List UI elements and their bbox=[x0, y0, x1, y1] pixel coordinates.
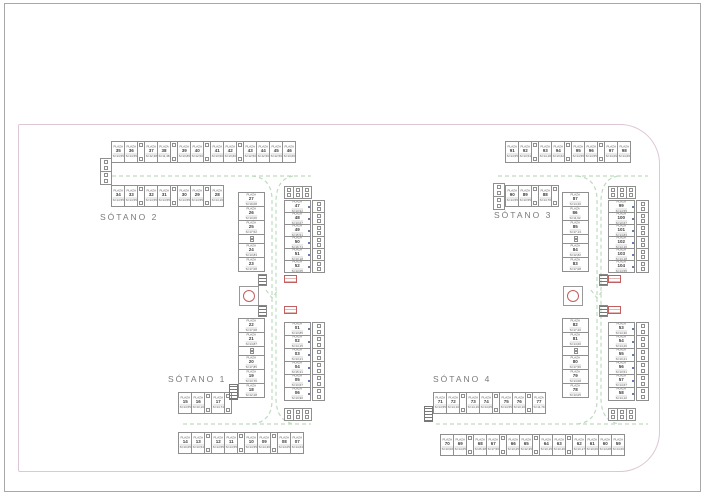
utility-box-icon bbox=[620, 415, 624, 419]
utility-cell bbox=[100, 171, 112, 185]
utility-box-icon bbox=[599, 157, 603, 161]
plaza-number: 87 bbox=[573, 196, 578, 201]
utility-box-icon bbox=[317, 207, 321, 211]
utility-box-icon bbox=[620, 188, 624, 192]
utility-box-icon bbox=[205, 201, 209, 205]
parking-space: PLAZA09S=14,36 bbox=[257, 432, 271, 454]
utility-box-icon bbox=[296, 415, 300, 419]
plaza-area: S=13,65 bbox=[292, 269, 303, 273]
plaza-number: 84 bbox=[573, 247, 578, 252]
utility-box-icon bbox=[317, 214, 321, 218]
parking-space-text: PLAZA27S=19,08 bbox=[246, 193, 257, 206]
door-mark bbox=[308, 206, 311, 208]
plaza-area: S=12,38 bbox=[145, 154, 156, 158]
parking-space-text: PLAZA87S=14,20 bbox=[570, 193, 581, 206]
parking-space: PLAZA70S=13,00 bbox=[440, 434, 454, 456]
utility-box-icon bbox=[205, 157, 209, 161]
utility-box-icon bbox=[566, 143, 570, 147]
plaza-area: S=13,46 bbox=[553, 447, 564, 451]
plaza-area: S=13,17 bbox=[573, 447, 584, 451]
parking-space-text: PLAZA46S=13,66 bbox=[283, 146, 294, 159]
parking-space-text: PLAZA101S=14,83 bbox=[616, 224, 627, 237]
plaza-area: S=17,08 bbox=[570, 267, 581, 271]
elevator-icon bbox=[239, 286, 259, 306]
parking-space: PLAZA04S=15,31 bbox=[284, 361, 311, 375]
parking-space-text: PLAZA89S=13,55 bbox=[519, 190, 530, 203]
parking-space: PLAZA17S=14,74 bbox=[211, 392, 225, 414]
utility-box-icon bbox=[104, 173, 108, 177]
s4-col-right-utils bbox=[636, 322, 649, 401]
parking-space-text: PLAZA20S=17,85 bbox=[246, 356, 257, 369]
parking-space: PLAZA40S=12,50 bbox=[190, 141, 204, 163]
parking-space-text: PLAZA06S=13,90 bbox=[292, 388, 303, 401]
utility-box-icon bbox=[641, 262, 645, 266]
utility-box-icon bbox=[629, 193, 633, 197]
parking-space-text: PLAZA70S=13,00 bbox=[441, 439, 452, 452]
plaza-area: S=13,05 bbox=[179, 445, 190, 449]
sotano-4-label: SÓTANO 4 bbox=[433, 374, 491, 384]
parking-space-text: PLAZA64S=13,15 bbox=[540, 439, 551, 452]
door-mark bbox=[308, 230, 311, 232]
utility-box-icon bbox=[317, 395, 321, 399]
parking-space-text: PLAZA16S=13,10 bbox=[192, 397, 203, 410]
plaza-area: S=12,50 bbox=[270, 154, 281, 158]
plaza-number: 26 bbox=[249, 210, 254, 215]
utility-box-icon bbox=[611, 410, 615, 414]
redbox-icon bbox=[608, 306, 621, 314]
s3-col-right-utils bbox=[636, 200, 649, 273]
parking-space: PLAZA82S=17,20 bbox=[562, 318, 589, 333]
s4-row-bottom: PLAZA70S=13,00PLAZA69S=14,05PLAZA68S=26,… bbox=[440, 434, 625, 456]
utility-box-icon bbox=[641, 238, 645, 242]
parking-space-text: PLAZA38S=11,38 bbox=[158, 146, 169, 159]
utility-box-icon bbox=[629, 188, 633, 192]
plaza-area: S=14,55 bbox=[158, 198, 169, 202]
parking-space: PLAZA61S=13,06 bbox=[585, 434, 599, 456]
parking-space: PLAZA32S=14,55 bbox=[144, 185, 158, 207]
utility-box-icon bbox=[497, 204, 501, 208]
utility-box-icon bbox=[533, 187, 537, 191]
parking-space-text: PLAZA83S=17,08 bbox=[570, 258, 581, 271]
parking-space-text: PLAZA52S=13,65 bbox=[292, 260, 303, 273]
parking-space-text: PLAZA34S=14,55 bbox=[112, 190, 123, 203]
plaza-number: 82 bbox=[573, 322, 578, 327]
utility-box-icon bbox=[641, 369, 645, 373]
utility-box-icon bbox=[317, 369, 321, 373]
plaza-number: 85 bbox=[573, 224, 578, 229]
utility-box-icon bbox=[533, 157, 537, 161]
utility-box-icon bbox=[641, 376, 645, 380]
utility-box-icon bbox=[533, 143, 537, 147]
plaza-number: 22 bbox=[249, 322, 254, 327]
stairs-icon bbox=[258, 274, 267, 286]
plaza-area: S=14,05 bbox=[454, 447, 465, 451]
parking-space-text: PLAZA48S=13,67 bbox=[292, 212, 303, 225]
utility-box-icon bbox=[317, 243, 321, 247]
utility-box-icon bbox=[317, 262, 321, 266]
utility-box-icon bbox=[239, 434, 243, 438]
utility-box-icon bbox=[501, 436, 505, 440]
parking-space: PLAZA79S=14,08 bbox=[562, 369, 589, 384]
utility-box-icon bbox=[317, 337, 321, 341]
plaza-area: S=14,36 bbox=[258, 445, 269, 449]
utility-box-icon bbox=[172, 187, 176, 191]
plaza-number: 47 bbox=[295, 203, 300, 208]
parking-space-text: PLAZA17S=14,74 bbox=[212, 397, 223, 410]
plaza-area: S=14,55 bbox=[125, 198, 136, 202]
parking-space-text: PLAZA23S=17,08 bbox=[246, 258, 257, 271]
plaza-area: S=14,55 bbox=[112, 198, 123, 202]
parking-space-text: PLAZA57S=14,67 bbox=[616, 375, 627, 388]
s3-left-block bbox=[493, 183, 505, 210]
parking-space-text: PLAZA91S=14,55 bbox=[506, 146, 517, 159]
utility-box-icon bbox=[104, 179, 108, 183]
utility-box-icon bbox=[599, 143, 603, 147]
parking-space-text: PLAZA19S=13,76 bbox=[246, 370, 257, 383]
plaza-area: S=17,50 bbox=[487, 447, 498, 451]
plaza-area: S=14,10 bbox=[447, 405, 458, 409]
utility-box-icon bbox=[641, 231, 645, 235]
utility-cell bbox=[312, 335, 325, 349]
parking-space: PLAZA63S=13,46 bbox=[552, 434, 566, 456]
parking-space-text: PLAZA43S=12,50 bbox=[244, 146, 255, 159]
parking-space: PLAZA10S=14,55 bbox=[244, 432, 258, 454]
utility-box-icon bbox=[272, 448, 276, 452]
utility-box-icon bbox=[620, 193, 624, 197]
parking-space: PLAZA60S=14,08 bbox=[598, 434, 612, 456]
plaza-area: S=14,08 bbox=[599, 447, 610, 451]
utility-box-icon bbox=[139, 143, 143, 147]
utility-box-icon bbox=[317, 363, 321, 367]
utility-box-icon bbox=[567, 450, 571, 454]
parking-space: PLAZA84S=12,82 bbox=[562, 243, 589, 258]
plaza-area: S=14,76 bbox=[539, 198, 550, 202]
parking-space-text: PLAZA81S=14,60 bbox=[570, 333, 581, 346]
plaza-area: S=13,60 bbox=[224, 154, 235, 158]
parking-space-text: PLAZA15S=14,55 bbox=[179, 397, 190, 410]
parking-space: PLAZA92S=13,54 bbox=[518, 141, 532, 163]
s1-row-mid: PLAZA15S=14,55PLAZA16S=13,10PLAZA17S=14,… bbox=[178, 392, 232, 414]
parking-space: PLAZA73S=14,16 bbox=[466, 392, 480, 414]
utility-box-icon bbox=[534, 450, 538, 454]
parking-space-text: PLAZA102S=14,16 bbox=[616, 236, 627, 249]
parking-space-text: PLAZA77S=11,79 bbox=[533, 397, 544, 410]
utility-box-icon bbox=[317, 382, 321, 386]
parking-space: PLAZA20S=17,85 bbox=[238, 355, 265, 370]
utility-box-icon bbox=[317, 231, 321, 235]
plaza-number: 51 bbox=[295, 251, 300, 256]
parking-space-text: PLAZA79S=14,08 bbox=[570, 370, 581, 383]
utility-box-icon bbox=[501, 450, 505, 454]
utility-box-icon bbox=[206, 448, 210, 452]
s2-col-right: PLAZA47S=13,92PLAZA48S=13,67PLAZA49S=15,… bbox=[284, 200, 311, 273]
utility-box-icon bbox=[527, 394, 531, 398]
elevator-icon bbox=[563, 286, 583, 306]
parking-space: PLAZA29S=14,55 bbox=[190, 185, 204, 207]
utility-box-icon bbox=[494, 408, 498, 412]
entry-icon bbox=[424, 406, 433, 422]
utility-box-icon bbox=[104, 160, 108, 164]
door-mark bbox=[632, 254, 635, 256]
parking-space-text: PLAZA37S=12,38 bbox=[145, 146, 156, 159]
plaza-number: 78 bbox=[573, 387, 578, 392]
utility-box-icon bbox=[139, 201, 143, 205]
parking-space: PLAZA11S=14,55 bbox=[224, 432, 238, 454]
utility-box-icon bbox=[494, 394, 498, 398]
utility-box-icon bbox=[206, 434, 210, 438]
door-mark bbox=[632, 218, 635, 220]
door-mark bbox=[632, 341, 635, 343]
parking-space-text: PLAZA54S=14,20 bbox=[616, 336, 627, 349]
parking-space: PLAZA26S=13,06 bbox=[238, 206, 265, 221]
parking-space: PLAZA05S=13,67 bbox=[284, 374, 311, 388]
plaza-area: S=14,74 bbox=[212, 405, 223, 409]
utility-box-icon bbox=[205, 143, 209, 147]
parking-space: PLAZA65S=12,35 bbox=[519, 434, 533, 456]
plaza-area: S=13,90 bbox=[292, 396, 303, 400]
plaza-area: S=14,16 bbox=[467, 405, 478, 409]
parking-space-text: PLAZA09S=14,36 bbox=[258, 437, 269, 450]
parking-space: PLAZA85S=17,13 bbox=[562, 220, 589, 235]
plaza-area: S=13,54 bbox=[192, 445, 203, 449]
utility-box-icon bbox=[250, 351, 254, 354]
parking-space-text: PLAZA86S=11,62 bbox=[570, 207, 581, 220]
elevator-circle bbox=[567, 290, 579, 302]
parking-space: PLAZA52S=13,65 bbox=[284, 260, 311, 273]
parking-space: PLAZA07S=14,64 bbox=[290, 432, 304, 454]
door-mark bbox=[632, 367, 635, 369]
door-mark bbox=[632, 354, 635, 356]
parking-space-text: PLAZA41S=13,50 bbox=[211, 146, 222, 159]
utility-box-icon bbox=[641, 395, 645, 399]
utility-box-icon bbox=[317, 376, 321, 380]
utility-cell bbox=[636, 348, 649, 362]
plaza-area: S=13,10 bbox=[513, 405, 524, 409]
parking-space-text: PLAZA01S=13,85 bbox=[292, 323, 303, 336]
parking-space-text: PLAZA24S=13,83 bbox=[246, 244, 257, 257]
plaza-area: S=14,55 bbox=[225, 445, 236, 449]
parking-space-text: PLAZA75S=14,55 bbox=[500, 397, 511, 410]
plaza-area: S=14,55 bbox=[179, 405, 190, 409]
parking-space-text: PLAZA100S=13,67 bbox=[616, 212, 627, 225]
s2-row-2: PLAZA34S=14,55PLAZA33S=14,55PLAZA32S=14,… bbox=[111, 185, 224, 207]
utility-box-icon bbox=[641, 255, 645, 259]
utility-box-icon bbox=[305, 193, 309, 197]
utility-box-icon bbox=[641, 226, 645, 230]
parking-space-text: PLAZA18S=12,28 bbox=[246, 384, 257, 397]
plaza-area: S=13,00 bbox=[441, 447, 452, 451]
parking-space: PLAZA78S=13,05 bbox=[562, 383, 589, 398]
plaza-area: S=13,15 bbox=[540, 447, 551, 451]
parking-space-text: PLAZA98S=14,66 bbox=[618, 146, 629, 159]
utility-box-icon bbox=[317, 238, 321, 242]
sotano-1-label: SÓTANO 1 bbox=[168, 374, 226, 384]
s4-col-left: PLAZA82S=17,20PLAZA81S=14,60PLAZA80S=17,… bbox=[562, 318, 589, 398]
plaza-area: S=13,50 bbox=[211, 154, 222, 158]
parking-space-text: PLAZA97S=14,09 bbox=[605, 146, 616, 159]
plaza-number: 80 bbox=[573, 359, 578, 364]
door-mark bbox=[632, 328, 635, 330]
plan-sheet-page: { "labels": { "s1": "SÓTANO 1", "s2": "S… bbox=[0, 0, 705, 498]
parking-space-text: PLAZA93S=14,18 bbox=[539, 146, 550, 159]
utility-box-icon bbox=[553, 201, 557, 205]
plaza-number: 50 bbox=[295, 239, 300, 244]
s2-col-right-utils bbox=[312, 200, 325, 273]
utility-box-icon bbox=[317, 356, 321, 360]
utility-cell bbox=[312, 322, 325, 336]
parking-space-text: PLAZA76S=13,10 bbox=[513, 397, 524, 410]
plaza-area: S=14,55 bbox=[178, 198, 189, 202]
utility-cell bbox=[493, 183, 505, 197]
parking-space-text: PLAZA04S=15,31 bbox=[292, 362, 303, 375]
utility-cell bbox=[626, 408, 636, 421]
parking-space-text: PLAZA22S=17,08 bbox=[246, 319, 257, 332]
utility-cell bbox=[636, 260, 649, 273]
utility-box-icon bbox=[497, 185, 501, 189]
entry-icon bbox=[229, 384, 238, 400]
parking-space: PLAZA41S=13,50 bbox=[210, 141, 224, 163]
utility-box-icon bbox=[497, 198, 501, 202]
plaza-number: 25 bbox=[249, 224, 254, 229]
parking-space: PLAZA97S=14,09 bbox=[604, 141, 618, 163]
utility-box-icon bbox=[317, 267, 321, 271]
parking-space-text: PLAZA39S=13,86 bbox=[178, 146, 189, 159]
parking-space-text: PLAZA02S=14,15 bbox=[292, 336, 303, 349]
utility-box-icon bbox=[641, 202, 645, 206]
door-mark bbox=[632, 393, 635, 395]
parking-space-text: PLAZA94S=13,62 bbox=[552, 146, 563, 159]
plaza-number: 104 bbox=[618, 263, 626, 268]
plaza-number: 24 bbox=[249, 247, 254, 252]
utility-box-icon bbox=[641, 207, 645, 211]
utility-box-icon bbox=[206, 408, 210, 412]
parking-space-text: PLAZA13S=13,54 bbox=[192, 437, 203, 450]
plaza-area: S=26,38 bbox=[474, 447, 485, 451]
utility-box-icon bbox=[139, 187, 143, 191]
parking-space: PLAZA87S=14,20 bbox=[562, 192, 589, 207]
utility-box-icon bbox=[641, 219, 645, 223]
plaza-number: 83 bbox=[573, 261, 578, 266]
parking-space-text: PLAZA51S=13,18 bbox=[292, 248, 303, 261]
utility-box-icon bbox=[534, 436, 538, 440]
door-mark bbox=[632, 266, 635, 268]
utility-box-icon bbox=[533, 201, 537, 205]
s2-col-left: PLAZA27S=19,08PLAZA26S=13,06PLAZA25S=17,… bbox=[238, 192, 265, 272]
parking-space: PLAZA57S=14,67 bbox=[608, 374, 635, 388]
parking-space-text: PLAZA73S=14,16 bbox=[467, 397, 478, 410]
utility-box-icon bbox=[641, 389, 645, 393]
plaza-area: S=14,05 bbox=[278, 445, 289, 449]
plaza-area: S=14,64 bbox=[291, 445, 302, 449]
door-mark bbox=[632, 242, 635, 244]
utility-box-icon bbox=[317, 350, 321, 354]
plaza-area: S=14,55 bbox=[212, 445, 223, 449]
utility-cell bbox=[493, 196, 505, 210]
plaza-area: S=14,55 bbox=[245, 445, 256, 449]
parking-space: PLAZA75S=14,55 bbox=[499, 392, 513, 414]
plaza-number: 23 bbox=[249, 261, 254, 266]
s1-col-right: PLAZA01S=13,85PLAZA02S=14,15PLAZA03S=13,… bbox=[284, 322, 311, 401]
utility-box-icon bbox=[287, 410, 291, 414]
utility-box-icon bbox=[317, 389, 321, 393]
utility-cell bbox=[636, 361, 649, 375]
utility-cell bbox=[302, 408, 312, 421]
plaza-area: S=13,10 bbox=[192, 405, 203, 409]
plaza-number: 48 bbox=[295, 215, 300, 220]
utility-box-icon bbox=[641, 243, 645, 247]
plaza-area: S=12,50 bbox=[257, 154, 268, 158]
parking-space: PLAZA56S=13,51 bbox=[608, 361, 635, 375]
parking-space: PLAZA80S=17,56 bbox=[562, 355, 589, 370]
stairs-icon bbox=[599, 305, 608, 317]
plaza-area: S=14,55 bbox=[112, 154, 123, 158]
parking-space-text: PLAZA63S=13,46 bbox=[553, 439, 564, 452]
door-mark bbox=[308, 254, 311, 256]
parking-space-text: PLAZA44S=12,50 bbox=[257, 146, 268, 159]
plaza-area: S=12,28 bbox=[246, 393, 257, 397]
sotano-3-label: SÓTANO 3 bbox=[494, 210, 552, 220]
parking-space-text: PLAZA99S=14,55 bbox=[616, 200, 627, 213]
parking-space-text: PLAZA11S=14,55 bbox=[225, 437, 236, 450]
parking-space-text: PLAZA90S=14,55 bbox=[506, 190, 517, 203]
plaza-number: 101 bbox=[618, 227, 626, 232]
parking-space: PLAZA89S=13,55 bbox=[518, 185, 532, 207]
utility-box-icon bbox=[461, 408, 465, 412]
utility-box-icon bbox=[641, 350, 645, 354]
parking-space-text: PLAZA68S=26,38 bbox=[474, 439, 485, 452]
parking-space-text: PLAZA45S=12,50 bbox=[270, 146, 281, 159]
plaza-number: 52 bbox=[295, 263, 300, 268]
parking-space-text: PLAZA80S=17,56 bbox=[570, 356, 581, 369]
utility-box-icon bbox=[611, 193, 615, 197]
parking-space-text: PLAZA72S=14,10 bbox=[447, 397, 458, 410]
utility-box-icon bbox=[641, 382, 645, 386]
door-mark bbox=[308, 367, 311, 369]
plaza-area: S=14,18 bbox=[539, 154, 550, 158]
parking-space: PLAZA30S=14,55 bbox=[177, 185, 191, 207]
utility-box-icon bbox=[172, 201, 176, 205]
parking-space-text: PLAZA56S=13,51 bbox=[616, 362, 627, 375]
parking-space: PLAZA81S=14,60 bbox=[562, 332, 589, 347]
utility-box-icon bbox=[567, 436, 571, 440]
parking-space: PLAZA66S=13,25 bbox=[506, 434, 520, 456]
utility-cell bbox=[302, 186, 312, 199]
plaza-area: S=12,50 bbox=[244, 154, 255, 158]
utility-box-icon bbox=[641, 343, 645, 347]
s4-col-bottom-utils bbox=[608, 408, 636, 421]
utility-cell bbox=[312, 348, 325, 362]
utility-box-icon bbox=[272, 434, 276, 438]
utility-cell bbox=[312, 361, 325, 375]
parking-space-text: PLAZA88S=14,76 bbox=[539, 190, 550, 203]
plaza-area: S=13,25 bbox=[507, 447, 518, 451]
parking-space-text: PLAZA28S=14,16 bbox=[211, 190, 222, 203]
parking-space-text: PLAZA33S=14,55 bbox=[125, 190, 136, 203]
parking-space: PLAZA104S=14,55 bbox=[608, 260, 635, 273]
parking-space: PLAZA90S=14,55 bbox=[505, 185, 519, 207]
s1-col-right-utils bbox=[312, 322, 325, 401]
plaza-number: 103 bbox=[618, 251, 626, 256]
utility-cell bbox=[636, 322, 649, 336]
parking-space: PLAZA45S=12,50 bbox=[269, 141, 283, 163]
parking-space: PLAZA12S=14,55 bbox=[211, 432, 225, 454]
parking-space-text: PLAZA35S=14,55 bbox=[112, 146, 123, 159]
parking-space: PLAZA88S=14,76 bbox=[538, 185, 552, 207]
utility-box-icon bbox=[641, 267, 645, 271]
parking-space-text: PLAZA84S=12,82 bbox=[570, 244, 581, 257]
stairs-icon bbox=[258, 305, 267, 317]
plaza-number: 18 bbox=[249, 387, 254, 392]
